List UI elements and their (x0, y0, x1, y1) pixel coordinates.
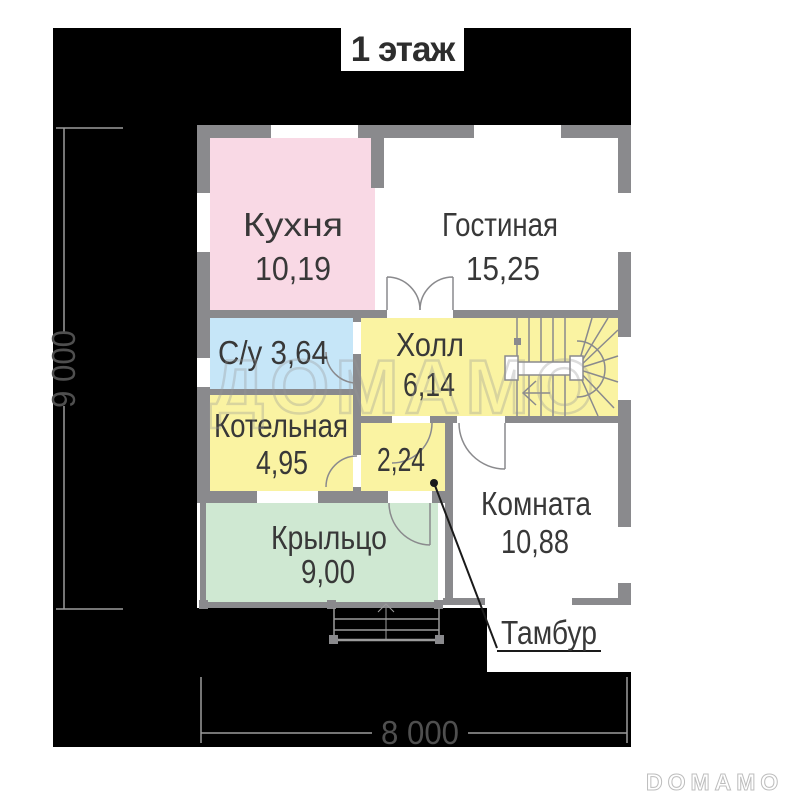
label-porch-area: 9,00 (301, 553, 355, 590)
label-kitchen-name: Кухня (243, 206, 343, 243)
label-porch-name: Крыльцо (271, 519, 387, 556)
porch-post-mid (327, 600, 336, 609)
label-bedroom-area: 10,88 (501, 523, 569, 560)
watermark-text: ДОМАМО (210, 350, 600, 426)
opening-porch-door (388, 491, 432, 503)
porch-post-left (199, 600, 208, 609)
wall-north (197, 125, 631, 138)
window-stairs-east (618, 337, 631, 400)
label-bedroom-name: Комната (481, 485, 592, 522)
window-living-east (618, 193, 631, 252)
window-bathroom-west (197, 358, 210, 387)
step-post-left (329, 635, 338, 644)
step-post-right (435, 635, 444, 644)
wall-west (197, 138, 210, 503)
porch-wall-left (200, 503, 206, 608)
brand-logo: DOMAMO (646, 769, 783, 796)
opening-french-door (387, 310, 453, 318)
label-living-name: Гостиная (442, 206, 558, 243)
label-living-area: 15,25 (466, 250, 540, 287)
opening-boiler-door (353, 455, 361, 487)
label-boiler-area: 4,95 (256, 444, 308, 481)
window-boiler-south (257, 491, 318, 503)
window-bedroom-east (618, 527, 631, 583)
label-kitchen-area: 10,19 (255, 250, 331, 287)
window-living-north (474, 125, 561, 138)
porch-post-right (434, 600, 443, 609)
window-bedroom-south (485, 598, 572, 605)
wall-kitchen-living-stub (371, 138, 384, 188)
floor-title: 1 этаж (341, 28, 464, 71)
label-dim-height: 9 000 (45, 330, 82, 408)
window-kitchen-west (197, 193, 210, 252)
floor-plan-page: Кухня 10,19 Гостиная 15,25 С/у 3,64 Холл… (0, 0, 800, 800)
wall-tambour-bedroom (445, 423, 453, 598)
label-tambour-callout: Тамбур (501, 614, 597, 651)
window-kitchen-north (271, 125, 358, 138)
porch-wall-bottom (200, 602, 443, 608)
label-tambour-area: 2,24 (377, 441, 425, 478)
entrance-steps (329, 604, 444, 644)
stair-newel (514, 338, 521, 345)
label-dim-width: 8 000 (381, 714, 459, 751)
